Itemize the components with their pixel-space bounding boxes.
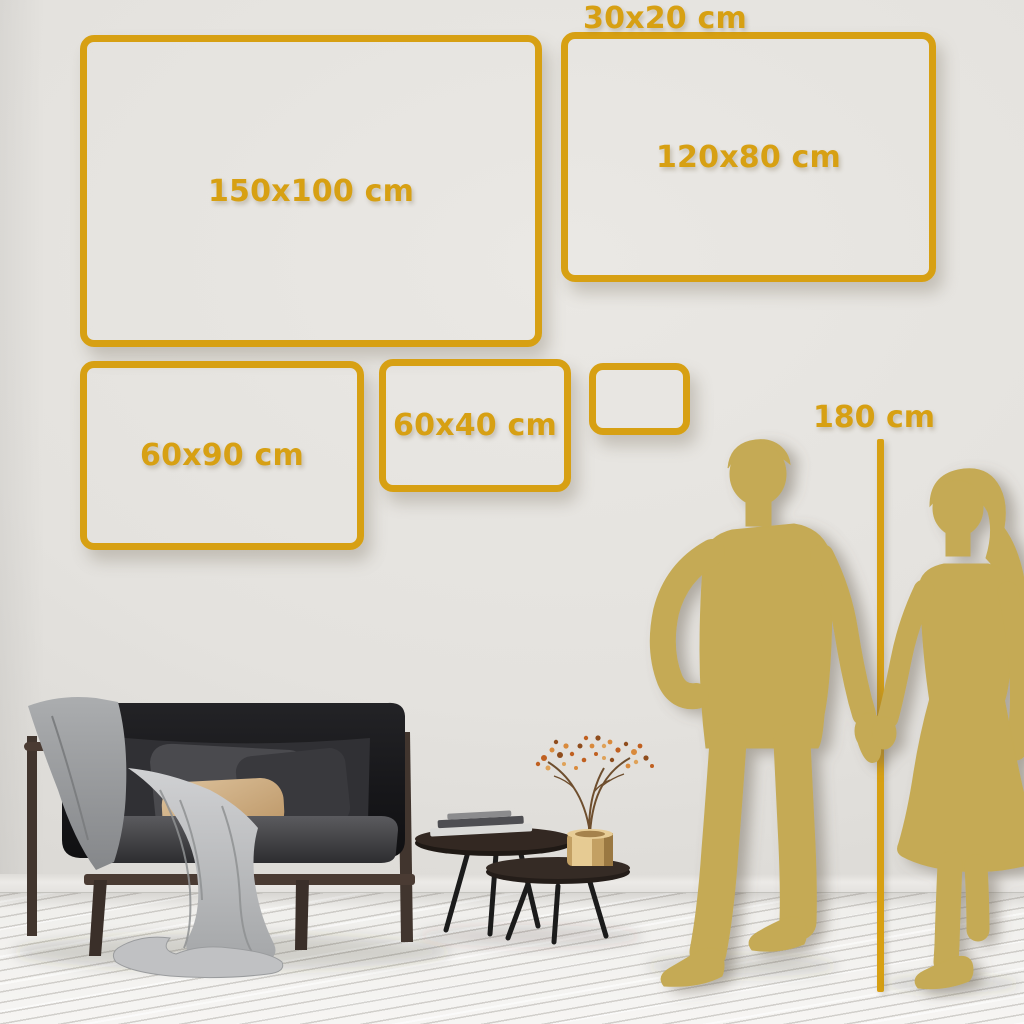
nesting-coffee-tables	[415, 735, 654, 947]
room-illustration	[0, 0, 1024, 1024]
canvas-size-guide-scene: 150x100 cm 120x80 cm 60x90 cm 60x40 cm 3…	[0, 0, 1024, 1024]
woman-silhouette	[872, 469, 1024, 989]
man-silhouette	[661, 440, 883, 987]
sofa-with-throw-blanket	[14, 697, 450, 978]
couple-silhouette	[661, 440, 1024, 989]
